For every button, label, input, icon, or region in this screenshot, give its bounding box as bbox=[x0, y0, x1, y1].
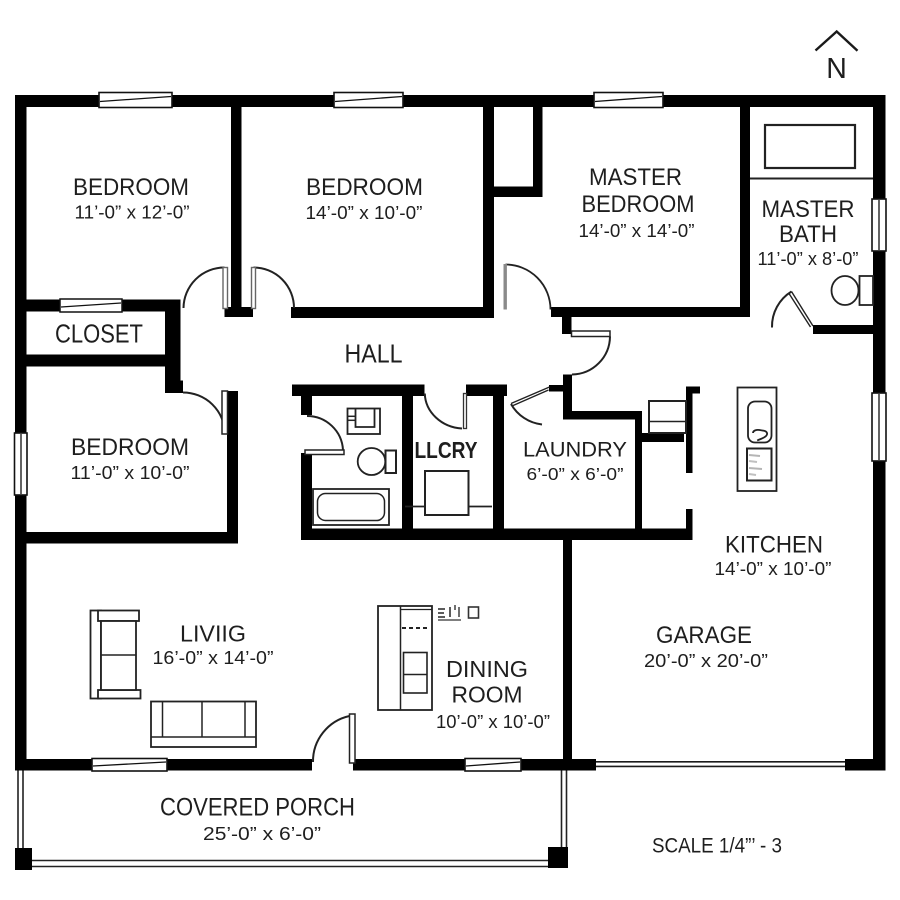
svg-text:14’-0” x 14’-0”: 14’-0” x 14’-0” bbox=[579, 220, 695, 241]
svg-text:11’-0” x 12’-0”: 11’-0” x 12’-0” bbox=[75, 202, 190, 223]
svg-text:20’-0” x 20’-0”: 20’-0” x 20’-0” bbox=[644, 650, 768, 671]
svg-text:CLOSET: CLOSET bbox=[55, 321, 143, 349]
svg-text:HALL: HALL bbox=[345, 341, 403, 369]
svg-text:6’-0” x 6’-0”: 6’-0” x 6’-0” bbox=[527, 464, 624, 484]
svg-text:BEDROOM: BEDROOM bbox=[582, 191, 695, 218]
svg-text:KITCHEN: KITCHEN bbox=[725, 532, 823, 559]
svg-text:14’-0” x 10’-0”: 14’-0” x 10’-0” bbox=[715, 558, 832, 579]
svg-text:LIVIIG: LIVIIG bbox=[180, 621, 246, 647]
svg-text:25’-0” x 6’-0”: 25’-0” x 6’-0” bbox=[203, 823, 321, 844]
svg-text:14’-0” x 10’-0”: 14’-0” x 10’-0” bbox=[306, 202, 423, 223]
svg-text:N: N bbox=[826, 53, 847, 85]
svg-text:SCALE 1/4”’ - 3: SCALE 1/4”’ - 3 bbox=[652, 835, 782, 858]
svg-text:BEDROOM: BEDROOM bbox=[306, 174, 423, 201]
svg-text:16’-0” x 14’-0”: 16’-0” x 14’-0” bbox=[153, 647, 274, 668]
svg-text:LAUNDRY: LAUNDRY bbox=[523, 438, 627, 462]
svg-text:GARAGE: GARAGE bbox=[656, 622, 752, 649]
svg-text:LLCRY: LLCRY bbox=[415, 437, 478, 463]
svg-text:ROOM: ROOM bbox=[452, 682, 523, 708]
svg-text:11’-0” x 8’-0”: 11’-0” x 8’-0” bbox=[758, 249, 859, 269]
svg-text:BEDROOM: BEDROOM bbox=[73, 174, 189, 201]
svg-text:DINING: DINING bbox=[446, 656, 528, 682]
svg-text:MASTER: MASTER bbox=[762, 196, 855, 223]
svg-text:11’-0” x 10’-0”: 11’-0” x 10’-0” bbox=[71, 462, 190, 483]
svg-text:MASTER: MASTER bbox=[589, 164, 682, 191]
svg-text:BEDROOM: BEDROOM bbox=[71, 434, 189, 461]
svg-text:10’-0” x 10’-0”: 10’-0” x 10’-0” bbox=[436, 711, 550, 732]
svg-text:BATH: BATH bbox=[779, 221, 837, 248]
svg-text:COVERED PORCH: COVERED PORCH bbox=[160, 794, 355, 822]
